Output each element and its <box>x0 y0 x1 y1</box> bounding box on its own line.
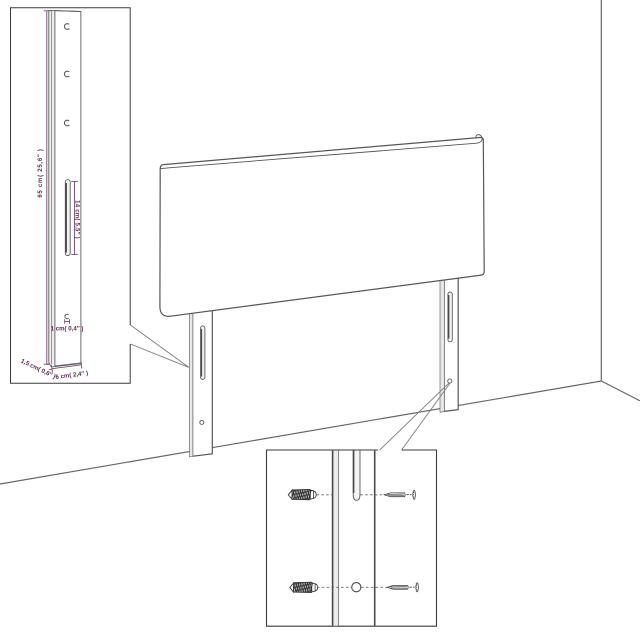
svg-text:1 cm( 0,4″ ): 1 cm( 0,4″ ) <box>51 325 84 332</box>
svg-text:14 cm( 5,5″ ): 14 cm( 5,5″ ) <box>73 200 80 239</box>
svg-text:65 cm( 25,6″ ): 65 cm( 25,6″ ) <box>37 148 44 197</box>
